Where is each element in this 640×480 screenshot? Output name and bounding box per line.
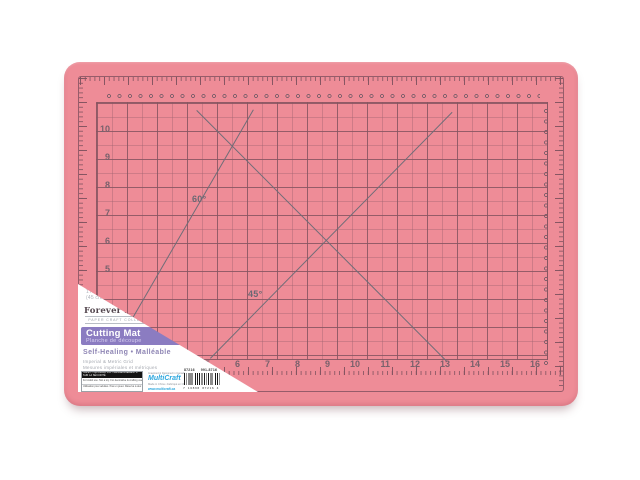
scale-number: 16 (522, 359, 540, 369)
product-photo: 60° 45° 1098765 5678910111213141516 17.7… (0, 0, 640, 480)
safety-text-en: For Adult use. Not a toy. For decorative… (83, 379, 143, 382)
scale-number: 6 (222, 359, 240, 369)
grid-feature-en: Imperial & Metric Grid (83, 359, 133, 364)
scale-number: 13 (432, 359, 450, 369)
barcode-digits: 7 16898 87216 4 (183, 386, 219, 390)
scale-number: 7 (252, 359, 270, 369)
safety-info-box: SAFETY INFORMATION / RENSEIGNEMENTS SUR … (81, 371, 143, 392)
feature-text: Self-Healing • Malléable (83, 349, 171, 356)
scale-number: 9 (92, 152, 110, 162)
manufacturer-website: www.multicraft.ca (148, 387, 175, 391)
scale-number: 11 (372, 359, 390, 369)
safety-header: SAFETY INFORMATION / RENSEIGNEMENTS SUR … (82, 372, 142, 378)
top-scale-marks (104, 91, 540, 101)
scale-number: 5 (92, 264, 110, 274)
scale-number: 8 (92, 180, 110, 190)
ruler-ticks-top (80, 77, 562, 85)
scale-number: 14 (462, 359, 480, 369)
product-title-fr: Planche de découpe (86, 338, 142, 344)
scale-number: 7 (92, 208, 110, 218)
item-number: 87216 (184, 368, 195, 372)
ruler-ticks-right (555, 78, 563, 388)
scale-number: 12 (402, 359, 420, 369)
manufacturer-logo: MultiCraft (148, 375, 181, 382)
scale-number: 6 (92, 236, 110, 246)
angle-label-60: 60° (192, 194, 207, 204)
sku-number: 991-8716 (201, 368, 217, 372)
scale-number: 15 (492, 359, 510, 369)
item-codes: 87216991-8716 (184, 368, 217, 372)
inch-grid (96, 102, 548, 360)
barcode (184, 373, 220, 385)
grid-feature-fr: Mesures impériales et métriques (83, 365, 157, 370)
angle-label-45: 45° (248, 289, 263, 299)
scale-number: 10 (92, 124, 110, 134)
safety-text-fr: Utilisation pour adultes. Pas un jouet. … (83, 385, 143, 388)
scale-number: 9 (312, 359, 330, 369)
scale-number: 8 (282, 359, 300, 369)
scale-number: 10 (342, 359, 360, 369)
